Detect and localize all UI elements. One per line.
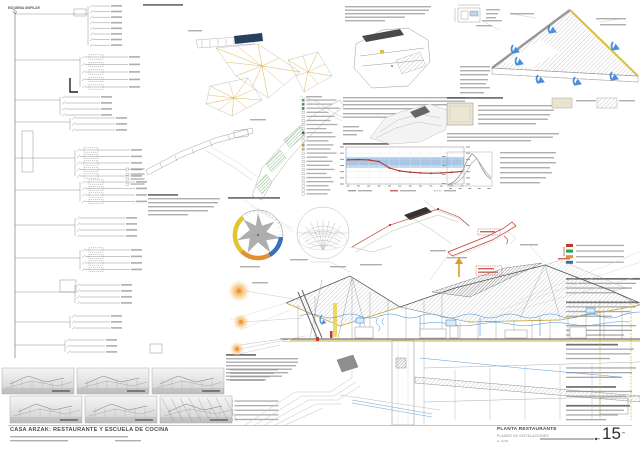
plan-title: PLANTA RESTAURANTE xyxy=(497,427,557,432)
sun-icon xyxy=(239,320,243,324)
render-thumbnails xyxy=(2,368,237,423)
highlighted-column xyxy=(333,303,337,337)
project-title: CASA ARZAK: RESTAURANTE Y ESCUELA DE COC… xyxy=(10,427,169,433)
construction-detail xyxy=(455,5,480,22)
interior-casework xyxy=(355,326,586,338)
dark-platform xyxy=(337,355,358,372)
plan-scale: E: 1/200 xyxy=(497,439,508,443)
render-thumbnail xyxy=(2,368,74,394)
building-section-perspective xyxy=(230,246,640,425)
comfort-chart xyxy=(340,147,470,187)
unifilar-schematic xyxy=(14,5,162,358)
legend-swatch-hatch xyxy=(597,98,617,108)
render-thumbnail xyxy=(152,368,224,394)
wind-rose xyxy=(231,208,285,262)
sheet-number: 15 xyxy=(602,424,621,444)
sun-icon xyxy=(235,347,238,350)
drainage-plan xyxy=(354,28,430,88)
kitchen-wing-plan xyxy=(146,128,256,180)
roof-structure-plan xyxy=(206,44,332,116)
sun-path-diagram xyxy=(297,207,349,259)
red-element xyxy=(330,331,333,338)
site-axonometric-map xyxy=(370,104,452,144)
installations-legend xyxy=(302,99,340,195)
sanitation-axonometric xyxy=(448,222,516,258)
render-thumbnail xyxy=(85,396,157,423)
material-swatch xyxy=(447,103,473,125)
plan-dark-roof xyxy=(234,33,263,44)
sheet-artwork: ESQUEMA UNIFILAR xyxy=(0,0,640,452)
architectural-sheet: ESQUEMA UNIFILAR xyxy=(0,0,640,452)
water-supply-axonometric xyxy=(350,200,470,252)
render-thumbnail xyxy=(10,396,82,423)
scale-bar xyxy=(540,438,597,440)
sun-icon xyxy=(237,289,241,293)
unifilar-title: ESQUEMA UNIFILAR xyxy=(8,6,40,10)
render-thumbnail xyxy=(77,368,149,394)
notes-legend xyxy=(566,244,624,264)
plan-subtitle: PLANOS DE INSTALACIONES xyxy=(497,434,549,438)
legend-swatch-beige xyxy=(552,98,572,108)
render-thumbnail xyxy=(160,396,237,423)
